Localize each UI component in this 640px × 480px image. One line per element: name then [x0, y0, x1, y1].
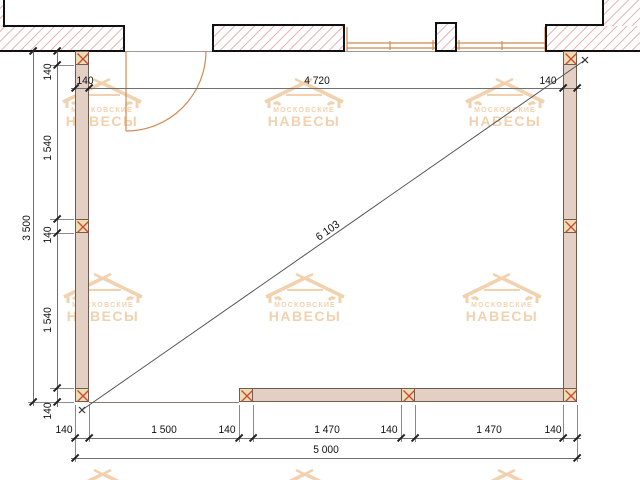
dim-left-140-2: 140 — [42, 226, 54, 243]
dim-bottom-140-3: 140 — [380, 424, 397, 436]
dim-left-1540-1: 1 540 — [42, 135, 54, 161]
dim-bottom-140-2: 140 — [218, 424, 235, 436]
dim-bottom-140-1: 140 — [55, 424, 72, 436]
dim-left-1540-2: 1 540 — [42, 307, 54, 333]
dim-top-4720: 4 720 — [304, 75, 330, 87]
dim-left-140-1: 140 — [42, 63, 54, 80]
dim-bottom-1470-1: 1 470 — [314, 424, 340, 436]
dim-bottom-1470-2: 1 470 — [476, 424, 502, 436]
dim-top-140-right: 140 — [539, 75, 556, 87]
dim-bottom-total-5000: 5 000 — [313, 444, 339, 456]
dim-bottom-140-4: 140 — [544, 424, 561, 436]
dim-left-total-3500: 3 500 — [21, 215, 33, 241]
dim-top-140-left: 140 — [76, 75, 93, 87]
floor-plan: МОСКОВСКИЕНАВЕСЫМОСКОВСКИЕНАВЕСЫМОСКОВСК… — [0, 0, 640, 480]
dim-bottom-1500: 1 500 — [151, 424, 177, 436]
dim-left-140-3: 140 — [42, 402, 54, 419]
